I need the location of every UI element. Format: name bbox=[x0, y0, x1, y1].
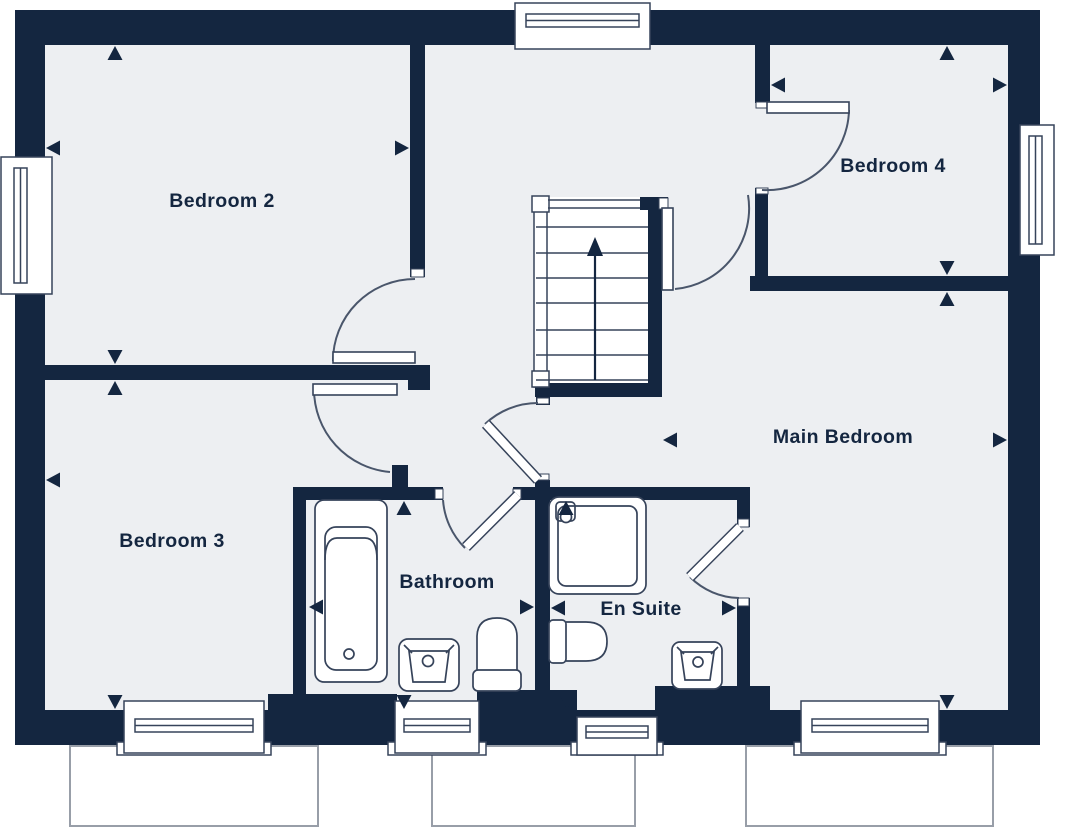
wall-bedroom4-west-upper bbox=[755, 45, 770, 103]
stairwell-floor bbox=[534, 197, 648, 387]
room-label-main-bedroom: Main Bedroom bbox=[773, 426, 913, 448]
floor-plan-drawing: Bedroom 2 Bedroom 4 Bedroom 3 Bathroom E… bbox=[0, 0, 1080, 830]
room-label-bedroom4: Bedroom 4 bbox=[840, 155, 945, 177]
wall-bathroom-ensuite bbox=[535, 500, 550, 712]
wall-bedroom2-east bbox=[410, 45, 425, 277]
room-label-bedroom3: Bedroom 3 bbox=[119, 530, 224, 552]
wall-bedroom2-bedroom3 bbox=[42, 365, 430, 380]
door-cap bbox=[738, 519, 749, 527]
door-cap bbox=[738, 598, 749, 606]
wall-bedroom3-door-post bbox=[392, 465, 408, 488]
bathtub bbox=[315, 500, 387, 682]
window-main-bedroom bbox=[794, 701, 946, 755]
window-ensuite bbox=[571, 717, 663, 755]
bottom-wall-pier-3 bbox=[655, 686, 770, 712]
ensuite-basin bbox=[672, 642, 722, 689]
stairs-rail bbox=[534, 197, 547, 387]
window-bathroom bbox=[388, 701, 486, 755]
wall-stairwell-east bbox=[648, 197, 662, 397]
bottom-wall-pier-2 bbox=[477, 690, 577, 712]
window-right bbox=[1020, 125, 1054, 255]
door-leaf-bedroom3 bbox=[313, 384, 397, 395]
door-cap bbox=[435, 489, 443, 499]
wall-bedroom2-bedroom3-end bbox=[408, 365, 430, 390]
stairs-newel-top bbox=[532, 196, 549, 212]
bathroom-basin bbox=[399, 639, 459, 691]
window-top bbox=[515, 3, 650, 49]
room-label-bedroom2: Bedroom 2 bbox=[169, 190, 274, 212]
door-cap bbox=[537, 398, 549, 404]
floor-plan-page: Bedroom 2 Bedroom 4 Bedroom 3 Bathroom E… bbox=[0, 0, 1080, 830]
bottom-wall-pier-1 bbox=[268, 694, 397, 712]
wall-bathroom-west bbox=[293, 487, 306, 712]
room-label-bathroom: Bathroom bbox=[399, 571, 494, 593]
stairs-newel-bottom bbox=[532, 371, 549, 387]
outer-wall-right bbox=[1008, 10, 1040, 745]
wall-bedroom4-south bbox=[750, 276, 1008, 291]
bathroom-toilet bbox=[473, 618, 521, 691]
wall-ensuite-east-lower bbox=[737, 598, 750, 712]
door-leaf-bedroom4 bbox=[767, 102, 849, 113]
outer-wall-left bbox=[15, 10, 45, 745]
wall-bedroom4-west-lower bbox=[755, 188, 768, 276]
ensuite-toilet bbox=[549, 620, 607, 663]
ground-outline-left bbox=[70, 746, 318, 826]
door-cap bbox=[411, 269, 424, 277]
room-label-ensuite: En Suite bbox=[600, 598, 681, 620]
ground-outline-middle bbox=[432, 746, 635, 826]
wall-stairs-bottom bbox=[535, 383, 662, 397]
door-leaf-bedroom2 bbox=[333, 352, 415, 363]
ground-outline-right bbox=[746, 746, 993, 826]
window-left bbox=[1, 157, 52, 294]
ground-floor-outline bbox=[70, 746, 993, 826]
window-bedroom3 bbox=[117, 701, 271, 755]
door-leaf-main-bedroom-north bbox=[662, 208, 673, 290]
wall-bathroom-north bbox=[305, 487, 443, 500]
